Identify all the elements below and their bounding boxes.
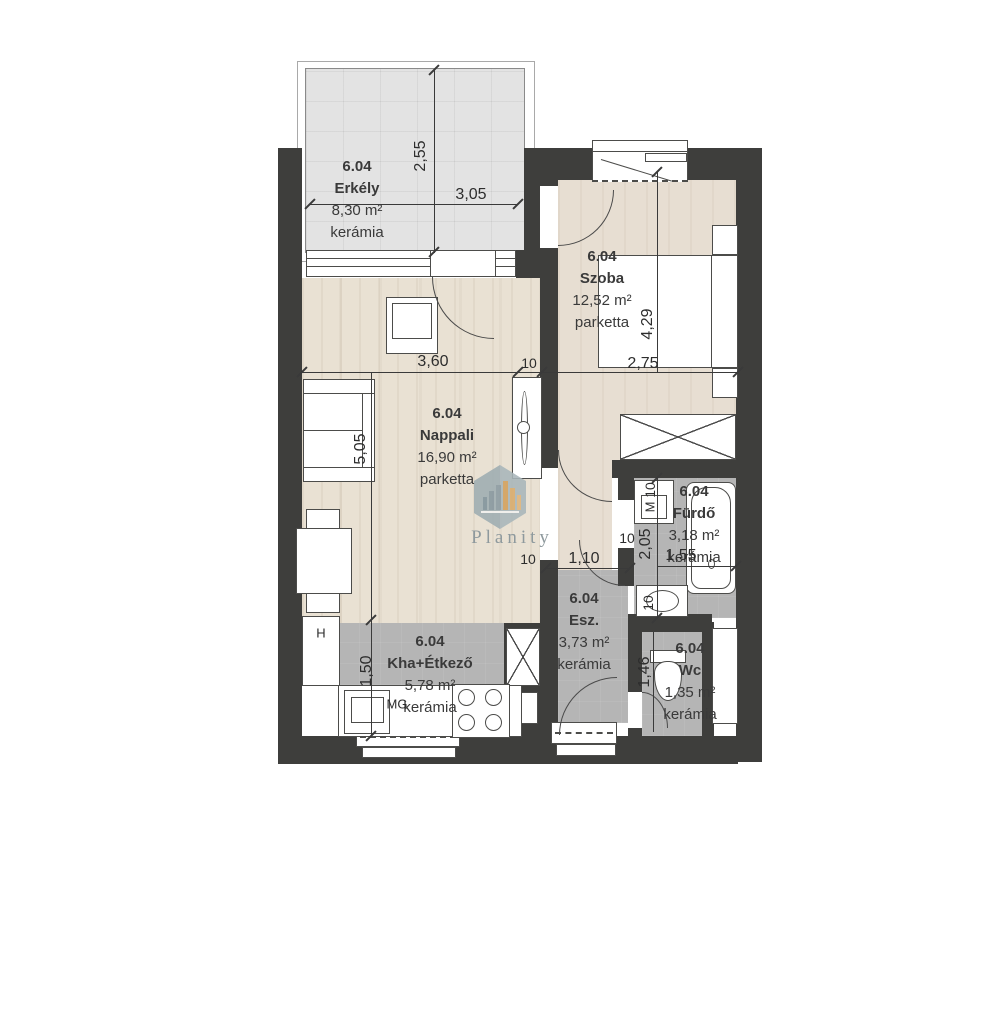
dim-balcony-depth: 2,55 [413, 140, 429, 171]
room-code: 6.04 [360, 631, 500, 653]
room-material: kerámia [360, 697, 500, 719]
room-material: parketta [387, 469, 507, 491]
room-label-esz: 6.04 Esz. 3,73 m² kerámia [524, 588, 644, 676]
dim-line-main-h [302, 372, 738, 373]
tv-knob [517, 421, 530, 434]
sofa [303, 379, 375, 482]
dim-wall-10-furdo: 10 [619, 531, 635, 545]
room-code: 6.04 [542, 246, 662, 268]
dim-szoba-depth: 4,29 [640, 308, 656, 339]
room-name: Szoba [542, 268, 662, 290]
dim-furdo-depth: 2,05 [638, 528, 654, 559]
wall-szoba-bottom [612, 460, 738, 478]
room-area: 8,30 m² [297, 200, 417, 222]
dim-line-balcony-v [434, 70, 435, 253]
dim-line-esz-h [546, 568, 630, 569]
room-label-erkely: 6.04 Erkély 8,30 m² kerámia [297, 156, 417, 244]
floorplan-canvas: Planity 6.04 Erkély 8,30 m² kerámia 6.04… [0, 0, 1000, 1026]
room-code: 6.04 [297, 156, 417, 178]
wardrobe [620, 414, 736, 460]
dim-wall-10-washer: 10 [643, 482, 657, 498]
wall-band-right-stub [516, 250, 542, 278]
room-label-nappali: 6.04 Nappali 16,90 m² parketta [387, 403, 507, 491]
dim-wall-10-top: 10 [521, 356, 537, 370]
room-name: Erkély [297, 178, 417, 200]
balcony-door-leaf [430, 250, 496, 277]
room-area: 5,78 m² [360, 675, 500, 697]
fridge-mark: H [316, 626, 325, 641]
entry-door-sill [556, 744, 616, 756]
room-name: Kha+Étkező [360, 653, 500, 675]
szoba-window [592, 140, 688, 182]
room-material: kerámia [630, 704, 750, 726]
dim-wall-10-basin: 10 [641, 595, 655, 611]
room-area: 3,73 m² [524, 632, 644, 654]
dim-nappali-depth: 5,05 [353, 433, 369, 464]
washing-machine-mark: M [643, 502, 658, 513]
room-material: kerámia [297, 222, 417, 244]
room-area: 16,90 m² [387, 447, 507, 469]
dim-szoba-width: 2,75 [627, 356, 658, 372]
dim-kitchen-depth: 1,50 [359, 655, 375, 686]
dim-nappali-width: 3,60 [417, 354, 448, 370]
wall-bottom [278, 736, 738, 764]
room-name: Nappali [387, 425, 507, 447]
room-code: 6.04 [387, 403, 507, 425]
dining-chair-bottom [306, 593, 340, 613]
room-label-kha-etkezo: 6.04 Kha+Étkező 5,78 m² kerámia [360, 631, 500, 719]
dim-balcony-width: 3,05 [455, 187, 486, 203]
room-code: 6.04 [524, 588, 644, 610]
room-material: kerámia [524, 654, 644, 676]
dim-furdo-width: 1,55 [665, 548, 696, 564]
dining-table [296, 528, 352, 594]
dining-chair-top [306, 509, 340, 529]
kitchen-window-sill [362, 747, 456, 758]
planity-wordmark: Planity [452, 527, 572, 549]
dim-wall-10-hall: 10 [520, 552, 536, 566]
nightstand-top [712, 225, 738, 255]
dishwasher-mark: MG [387, 697, 408, 712]
dim-wc-depth: 1,46 [637, 656, 653, 687]
armchair [386, 297, 438, 354]
room-name: Esz. [524, 610, 644, 632]
szoba-door-gap [540, 186, 558, 248]
dim-hall-door-width: 1,10 [568, 551, 599, 567]
